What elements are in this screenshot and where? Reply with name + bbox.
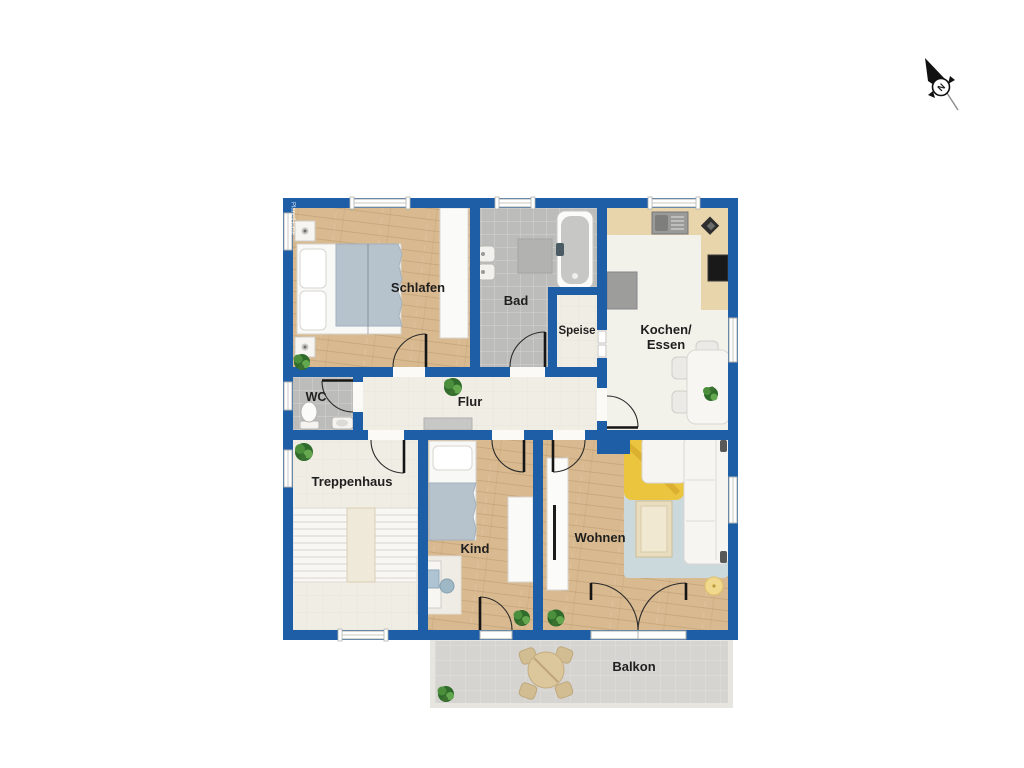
window [350, 197, 410, 209]
fridge [607, 272, 637, 309]
flur-label: Flur [458, 394, 483, 409]
kochen-label-line2: Essen [647, 337, 685, 352]
hall-cabinet [424, 418, 472, 430]
window [729, 477, 737, 523]
kind-wardrobe [508, 497, 533, 582]
kind-label: Kind [461, 541, 490, 556]
pouf-dot [712, 584, 715, 587]
balkon-label: Balkon [612, 659, 655, 674]
kochen-label-line1: Kochen/ [640, 322, 692, 337]
room-balkon: Balkon [430, 636, 733, 708]
floorplan-page: Balkon [0, 0, 1024, 768]
window [729, 318, 737, 362]
watermark-text: PlanetHome [290, 202, 296, 236]
window [284, 450, 292, 487]
wc-sink-icon [332, 417, 353, 429]
schlafen-label: Schlafen [391, 280, 445, 295]
tv-sideboard-icon [547, 458, 568, 590]
single-bed-icon [429, 441, 476, 540]
nightstand-icon [295, 337, 315, 357]
nightstand-icon [295, 221, 315, 241]
bad-floor [480, 208, 548, 367]
speise-label: Speise [558, 325, 595, 337]
wohnen-plant-icon [548, 610, 565, 627]
kitchen-sink-icon [652, 212, 688, 234]
bathtub-icon [556, 211, 593, 289]
balcony-floor [435, 641, 728, 703]
wohnen-label: Wohnen [574, 530, 625, 545]
stove [708, 255, 728, 281]
bath-rug [518, 239, 552, 273]
wc-label: WC [306, 390, 327, 404]
kitchen-fittings [607, 208, 730, 430]
treppenhaus-label: Treppenhaus [312, 474, 393, 489]
door-sill [591, 631, 686, 639]
plant-icon [295, 443, 313, 461]
coffee-table-icon [636, 501, 672, 557]
north-compass-icon: N [925, 58, 958, 110]
staircase-icon [293, 508, 418, 582]
double-bed-icon [297, 244, 402, 334]
wardrobe [440, 208, 468, 338]
bad-label: Bad [504, 293, 529, 308]
floorplan-drawing: Balkon [0, 0, 1024, 768]
door-sill [480, 631, 512, 639]
window [648, 197, 700, 209]
window [495, 197, 535, 209]
window [284, 382, 292, 410]
window [338, 629, 388, 641]
